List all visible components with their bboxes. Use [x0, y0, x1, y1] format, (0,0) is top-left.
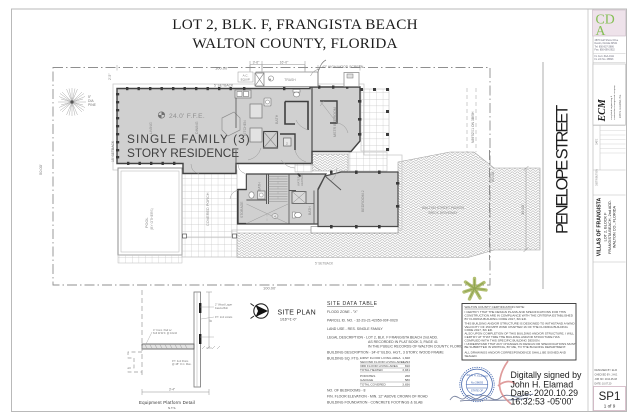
- svg-text:CHECKED BY: J.H.E.: CHECKED BY: J.H.E.: [595, 374, 619, 377]
- svg-text:PENELOPE STREET: PENELOPE STREET: [554, 105, 572, 234]
- svg-text:construction management compan: construction management company: [613, 84, 616, 120]
- svg-text:BE SUBMITTED IN WRITING, BY ME: BE SUBMITTED IN WRITING, BY ME, TO THE B…: [465, 345, 567, 349]
- svg-text:completed engineering &: completed engineering &: [610, 95, 613, 120]
- svg-text:FLOOD ZONE - "X": FLOOD ZONE - "X": [327, 310, 358, 314]
- svg-text:WALTON COUNTY CERTIFICATION NO: WALTON COUNTY CERTIFICATION NOTE:: [465, 305, 526, 309]
- svg-text:3'-6": 3'-6": [253, 61, 261, 65]
- svg-text:BATH: BATH: [258, 182, 262, 191]
- svg-text:@ 48" O.C. Max.: @ 48" O.C. Max.: [172, 362, 192, 366]
- svg-text:ECM: ECM: [597, 98, 608, 122]
- svg-text:IN THE PUBLIC RECORDS OF WALTO: IN THE PUBLIC RECORDS OF WALTON COUNTY, …: [368, 345, 466, 349]
- svg-text:100.00': 100.00': [215, 66, 228, 71]
- svg-text:POOL: POOL: [145, 217, 149, 228]
- svg-text:Fax: 850-699-2932: Fax: 850-699-2932: [595, 49, 616, 52]
- svg-text:16:32:53 -05'00': 16:32:53 -05'00': [511, 397, 574, 407]
- svg-text:36.00': 36.00': [520, 204, 525, 215]
- svg-text:FL LIC No. 28693: FL LIC No. 28693: [595, 58, 614, 61]
- svg-text:1 of 9: 1 of 9: [604, 404, 616, 409]
- svg-text:STORAGE: STORAGE: [240, 201, 244, 218]
- svg-text:WALTON STREET PAVERS: WALTON STREET PAVERS: [422, 206, 465, 210]
- svg-text:GARAGE: GARAGE: [360, 378, 373, 382]
- svg-text:N.T.S.: N.T.S.: [168, 406, 176, 410]
- svg-text:DATE: DATE: [596, 138, 599, 145]
- svg-text:BY FLORIDA BUILDING CODE 2017,: BY FLORIDA BUILDING CODE 2017, 6th ED.: [465, 317, 527, 321]
- svg-text:JOB NO: 2010-05-08: JOB NO: 2010-05-08: [595, 378, 618, 381]
- svg-text:FIN. FLOOR ELEVATION - MIN.: FIN. FLOOR ELEVATION - MIN. 12" ABOVE CR…: [327, 395, 428, 399]
- svg-text:BUILDING SQ. FTG. -: BUILDING SQ. FTG. -: [327, 357, 362, 361]
- svg-text:PINE: PINE: [88, 103, 97, 107]
- svg-text:AS RECORDED IN PLAT BOOK 3, PA: AS RECORDED IN PLAT BOOK 3, PAGE 41: [368, 340, 438, 344]
- svg-text:DESIGNED BY: ELM: DESIGNED BY: ELM: [595, 369, 617, 372]
- svg-text:24.0' F.F.E.: 24.0' F.F.E.: [169, 113, 205, 120]
- svg-text:SITE DATA TABLE: SITE DATA TABLE: [327, 301, 378, 307]
- svg-text:TOTAL COVERED: TOTAL COVERED: [360, 383, 386, 387]
- svg-text:N89'52'01 ON 3B/5H: N89'52'01 ON 3B/5H: [471, 111, 475, 143]
- svg-text:LOT 2, BLOCK F: LOT 2, BLOCK F: [604, 212, 608, 242]
- svg-text:VILLAS OF FRANGISTA: VILLAS OF FRANGISTA: [597, 198, 603, 257]
- svg-text:No 28693: No 28693: [471, 381, 484, 385]
- svg-text:NO. OF BEDROOMS - 8: NO. OF BEDROOMS - 8: [327, 389, 366, 393]
- svg-text:WALTON COUNTY, FLORIDA: WALTON COUNTY, FLORIDA: [192, 35, 397, 52]
- svg-text:A: A: [596, 23, 606, 38]
- svg-text:STORY RESIDENCE: STORY RESIDENCE: [127, 146, 239, 160]
- svg-text:HEATER: HEATER: [300, 175, 304, 186]
- svg-text:BEDROOM 2: BEDROOM 2: [361, 190, 365, 212]
- svg-text:BUILDING DESCRIPTION - 34'-: BUILDING DESCRIPTION - 34'-0" BLDG. HGT.…: [327, 351, 444, 355]
- svg-text:(BY OTHERS): (BY OTHERS): [150, 208, 154, 230]
- svg-text:42" HIGH WOOD SCREEN: 42" HIGH WOOD SCREEN: [322, 65, 364, 69]
- svg-text:PARCEL ID. NO. - 32-2S-21-4: PARCEL ID. NO. - 32-2S-21-42050-00F-0020: [327, 319, 398, 323]
- svg-text:LEGAL DESCRIPTION - LOT 2,: LEGAL DESCRIPTION - LOT 2, BLK. F FRANGI…: [327, 336, 438, 340]
- svg-text:8': 8': [209, 319, 213, 322]
- svg-text:580: 580: [405, 378, 410, 382]
- svg-text:6x6 W.W.F. @ 10x10: 6x6 W.W.F. @ 10x10: [153, 331, 178, 335]
- svg-text:STATE OF: STATE OF: [471, 389, 484, 393]
- svg-text:TOTAL HEATED: TOTAL HEATED: [360, 368, 384, 372]
- svg-text:ALL DRAWINGS AND/OR CORRESPOND: ALL DRAWINGS AND/OR CORRESPONDENCE SHALL…: [465, 351, 567, 355]
- svg-text:15' SETBACK: 15' SETBACK: [111, 140, 115, 162]
- svg-text:EQUIP.: EQUIP.: [241, 78, 251, 82]
- svg-text:5' SETBACK: 5' SETBACK: [214, 84, 234, 88]
- svg-text:50.00': 50.00': [38, 164, 43, 175]
- svg-text:TRASH: TRASH: [284, 78, 296, 82]
- svg-text:100.00': 100.00': [263, 286, 276, 291]
- svg-text:3'-4": 3'-4": [169, 388, 175, 392]
- svg-text:5' SETBACK: 5' SETBACK: [315, 262, 334, 266]
- svg-text:BATH: BATH: [275, 114, 279, 124]
- svg-text:3,931: 3,931: [402, 368, 410, 372]
- svg-text:Equipment Platform Detail: Equipment Platform Detail: [139, 400, 195, 405]
- svg-text:COVERED PORCH: COVERED PORCH: [206, 192, 210, 226]
- svg-text:FRANGISTA BEACH, 2nd ADD.: FRANGISTA BEACH, 2nd ADD.: [608, 200, 612, 254]
- svg-text:SP1: SP1: [599, 391, 621, 403]
- svg-text:DISTRIBUTION: DISTRIBUTION: [596, 169, 599, 186]
- svg-text:LAND USE - RES. SINGLE FAMI: LAND USE - RES. SINGLE FAMILY: [327, 327, 383, 331]
- svg-text:BATH: BATH: [308, 206, 312, 215]
- svg-text:Digitally signed by: Digitally signed by: [511, 370, 583, 380]
- svg-text:16'-0": 16'-0": [280, 61, 289, 65]
- svg-text:JOB N. ELAMAD, P.E.: JOB N. ELAMAD, P.E.: [619, 94, 622, 118]
- svg-text:DATE: 10.07.20: DATE: 10.07.20: [595, 383, 613, 386]
- svg-text:LIVING: LIVING: [149, 122, 153, 134]
- svg-text:SEALED.: SEALED.: [465, 354, 478, 358]
- svg-text:Fascia Bolt: Fascia Bolt: [215, 306, 228, 310]
- svg-text:DINING: DINING: [195, 121, 199, 134]
- svg-text:1/16"=1'-0": 1/16"=1'-0": [280, 318, 297, 322]
- svg-text:BRICK DRIVEWAY: BRICK DRIVEWAY: [428, 211, 458, 215]
- svg-text:KITCHEN: KITCHEN: [243, 120, 247, 136]
- svg-text:BUILDING FOUNDATION - CONCR: BUILDING FOUNDATION - CONCRETE FOOTINGS …: [327, 401, 423, 405]
- svg-text:WALTON CO., FLORIDA: WALTON CO., FLORIDA: [613, 205, 617, 248]
- svg-text:SITE PLAN: SITE PLAN: [278, 310, 317, 317]
- svg-text:2'-5": 2'-5": [108, 74, 112, 80]
- svg-text:3,836: 3,836: [402, 383, 410, 387]
- svg-text:P.T. 2x4 Lintels: P.T. 2x4 Lintels: [215, 315, 233, 319]
- svg-text:LOT 2, BLK. F, FRANGISTA BEACH: LOT 2, BLK. F, FRANGISTA BEACH: [172, 16, 417, 33]
